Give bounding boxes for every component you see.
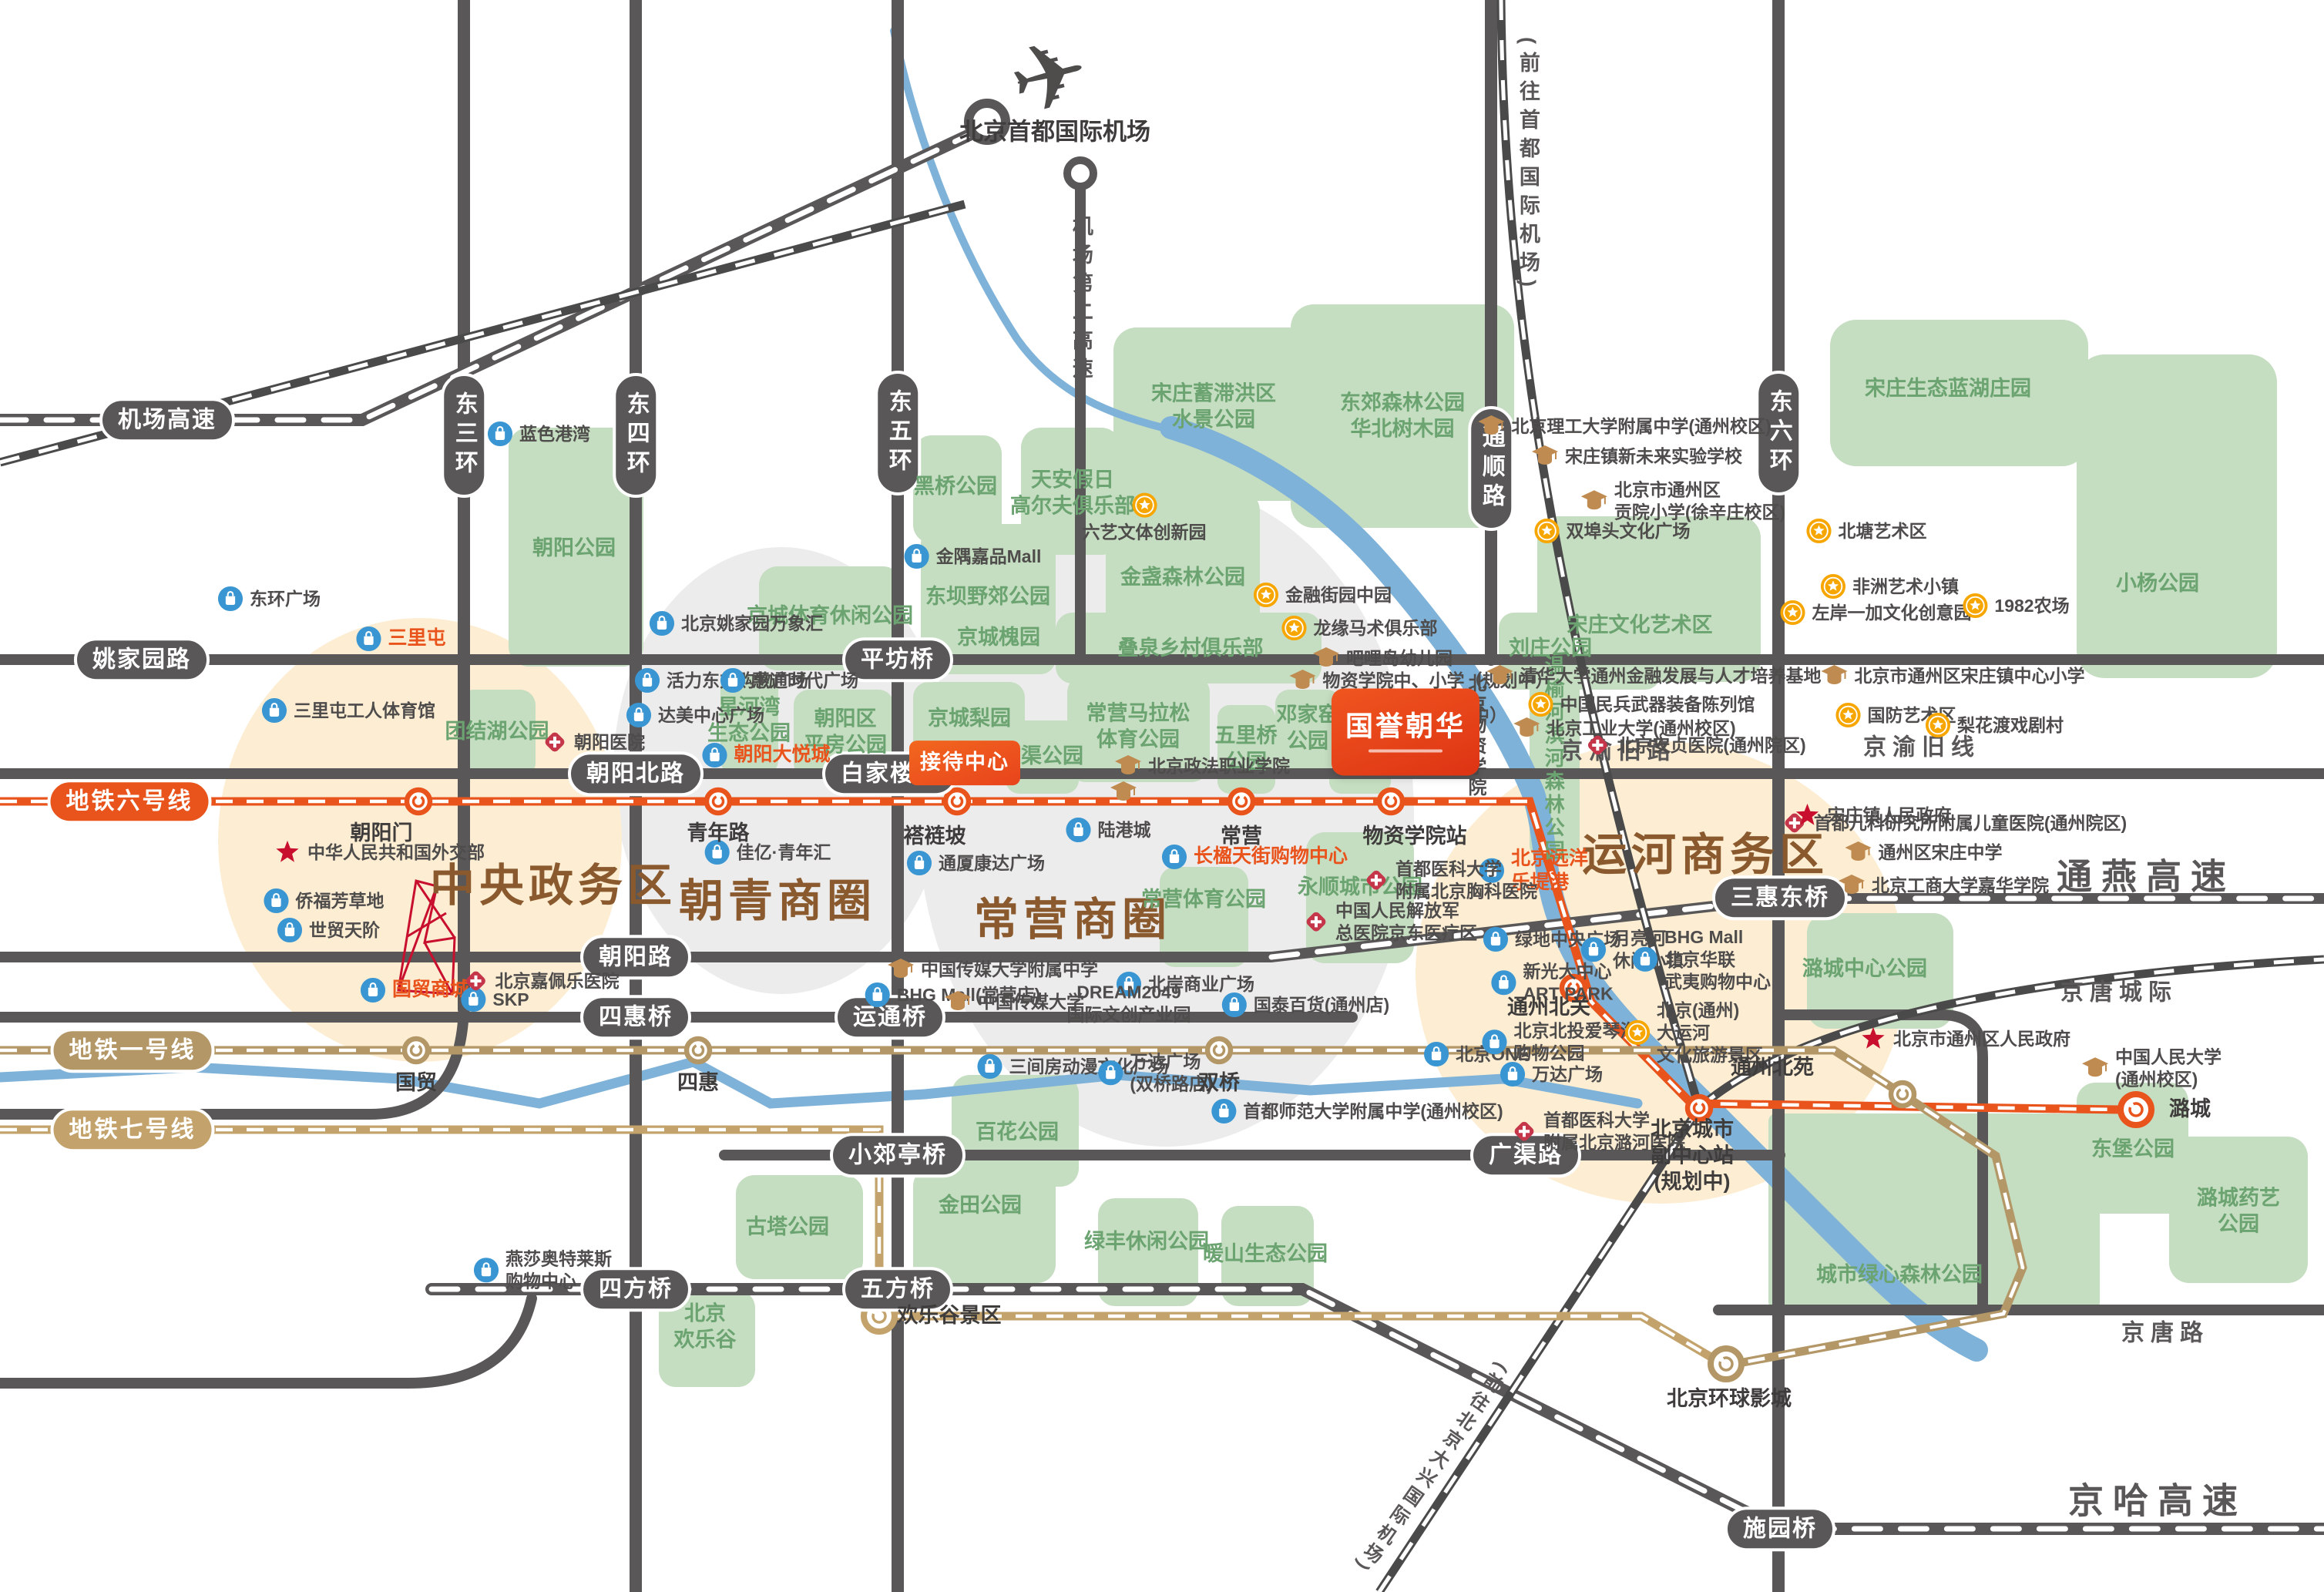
district-title: 朝青商圈	[679, 874, 876, 930]
school-poi-text: 通州区宋庄中学	[1879, 841, 2003, 864]
school-poi	[1110, 780, 1144, 804]
shopping-bag-icon	[261, 697, 287, 724]
park-label: 叠泉乡村俱乐部	[1118, 636, 1264, 662]
hospital-poi: 北京安贞医院(通州院区)	[1584, 732, 1805, 758]
road-badge: 姚家园路	[74, 637, 210, 682]
graduation-cap-icon	[1110, 780, 1137, 804]
metro-station-label: 潞城	[2169, 1097, 2211, 1123]
park-label-text: 宋庄生态蓝湖庄园	[1865, 376, 2031, 402]
graduation-cap-icon	[1821, 663, 1849, 688]
shopping-bag-icon	[649, 610, 675, 636]
attraction-poi: 北塘艺术区	[1806, 518, 1927, 544]
attraction-poi-text: 北塘艺术区	[1839, 520, 1927, 542]
shopping-bag-icon	[217, 586, 243, 612]
school-poi: 中国人民大学 (通州校区)	[2081, 1046, 2222, 1090]
government-poi: 宋庄镇人民政府	[1794, 802, 1952, 828]
school-poi-text: 中国人民大学 (通州校区)	[2115, 1046, 2222, 1090]
mall-poi-highlight: 朝阳大悦城	[701, 742, 830, 768]
label-layer: 北京首都国际机场✈机场第二高速(前往首都国际机场)(前往北京大兴国际机场)机场高…	[0, 0, 2324, 1592]
park-label: 朝阳公园	[532, 536, 616, 562]
school-poi-text: 北京理工大学附属中学(通州校区)	[1511, 415, 1771, 438]
shopping-bag-icon	[1632, 946, 1658, 972]
school-poi: 北京政法职业学院	[1114, 754, 1290, 778]
star-attraction-icon	[1835, 702, 1862, 728]
park-label: 宋庄文化艺术区	[1567, 613, 1713, 639]
park-label-text: 京城槐园	[957, 625, 1040, 651]
school-poi-text: 中国传媒大学	[978, 991, 1084, 1013]
shopping-bag-icon	[626, 702, 652, 728]
attraction-poi: 非洲艺术小镇	[1820, 573, 1959, 600]
star-attraction-icon	[1806, 518, 1832, 544]
attraction-poi: 六艺文体创新园	[1083, 492, 1207, 544]
shopping-bag-icon	[264, 888, 290, 914]
hospital-poi: 朝阳医院	[542, 729, 645, 755]
metro-station-label: 常营	[1221, 824, 1262, 850]
park-label-text: 东堡公园	[2091, 1137, 2175, 1163]
hospital-cross-icon	[1584, 732, 1610, 758]
shopping-bag-icon	[634, 667, 660, 694]
park-label: 东郊森林公园 华北树木园	[1340, 390, 1465, 442]
park-label: 常营体育公园	[1141, 887, 1266, 913]
shopping-bag-icon	[906, 850, 932, 876]
mall-poi-highlight: 国贸商城	[360, 977, 469, 1003]
graduation-cap-icon	[1513, 716, 1540, 741]
school-poi: 北京市通州区宋庄镇中心小学	[1821, 663, 2085, 688]
ring-road-badge: 东四环	[613, 373, 659, 498]
shopping-bag-icon	[865, 982, 891, 1008]
mall-poi: 北京北投爱琴海 购物公园	[1482, 1019, 1638, 1064]
road-label-vertical-text: 机场第二高速	[1067, 215, 1093, 386]
hospital-poi-text: 中国人民解放军 总医院京东医疗区	[1335, 899, 1477, 944]
ring-road-badge-text: 东三环	[449, 391, 479, 479]
mall-poi-text: 国泰百货(通州店)	[1254, 994, 1389, 1016]
park-label: 暖山生态公园	[1203, 1241, 1328, 1268]
graduation-cap-icon	[1312, 646, 1340, 670]
graduation-cap-icon	[1531, 444, 1559, 469]
metro-station-label-text: 欢乐谷景区	[898, 1303, 1002, 1329]
park-label: 金盏森林公园	[1120, 565, 1245, 591]
text-label-text: DREAM2049 国际文创产业园	[1067, 981, 1191, 1026]
attraction-poi-text: 金融街园中园	[1285, 584, 1392, 606]
park-label-text: 叠泉乡村俱乐部	[1118, 636, 1264, 662]
metro-station-label-text: 国贸	[395, 1070, 437, 1097]
road-badge: 小郊亭桥	[830, 1133, 966, 1177]
park-label: 古塔公园	[746, 1214, 829, 1241]
school-poi-text: 清华大学通州金融发展与人才培养基地	[1520, 665, 1822, 687]
park-label: 常营马拉松 体育公园	[1086, 700, 1191, 753]
expressway-label: 京哈高速	[2068, 1479, 2247, 1523]
park-label: 京城梨园	[928, 706, 1011, 732]
road-badge-text: 小郊亭桥	[848, 1140, 947, 1170]
shopping-bag-icon	[1066, 817, 1092, 843]
park-label: 邓家窑 公园	[1277, 702, 1339, 754]
graduation-cap-icon	[1580, 489, 1608, 513]
metro-station-label: 通州北苑	[1731, 1055, 1814, 1081]
park-label-text: 城市绿心森林公园	[1816, 1262, 1983, 1288]
project-marker-subline	[1369, 750, 1442, 753]
park-label: 北京 欢乐谷	[674, 1301, 737, 1353]
district-title-text: 朝青商圈	[679, 874, 876, 930]
mall-poi-text: 金隅嘉品Mall	[936, 546, 1042, 568]
star-attraction-icon	[1534, 518, 1560, 544]
hospital-cross-icon	[1303, 909, 1329, 935]
project-marker-text: 国誉朝华	[1345, 709, 1466, 744]
road-label: 京唐路	[2121, 1318, 2209, 1348]
mall-poi-text: 蓝色港湾	[519, 423, 590, 445]
mall-poi: 万达广场 (双桥路店)	[1097, 1050, 1212, 1095]
school-poi: 中国传媒大学	[944, 989, 1084, 1014]
park-label-text: 百花公园	[976, 1120, 1059, 1146]
park-label: 城市绿心森林公园	[1816, 1262, 1983, 1288]
park-label: 潞城中心公园	[1802, 956, 1927, 982]
hospital-poi: 北京嘉佩乐医院	[463, 968, 620, 994]
park-label: 潞城药艺公园	[2196, 1185, 2282, 1238]
park-label-text: 潞城中心公园	[1802, 956, 1927, 982]
attraction-poi: 金融街园中园	[1253, 582, 1392, 608]
expressway-label-text: 通燕高速	[2057, 855, 2235, 899]
ring-road-badge-text: 东四环	[621, 391, 650, 479]
star-attraction-icon	[1624, 1019, 1651, 1046]
metro-line6-badge: 地铁六号线	[48, 779, 212, 824]
mall-poi-text: 万达广场	[1532, 1063, 1603, 1086]
mall-poi: 三里屯工人体育馆	[261, 697, 435, 724]
school-poi-text: 吧哩岛幼儿园	[1346, 647, 1452, 670]
mall-poi-text: 陆港城	[1098, 819, 1151, 841]
star-attraction-icon	[1820, 573, 1846, 600]
mall-poi-highlight-text: 三里屯	[388, 626, 445, 650]
graduation-cap-icon	[1114, 754, 1142, 778]
hospital-poi-text: 首都医科大学 附属北京胸科医院	[1395, 858, 1537, 902]
attraction-poi-text: 中国民兵武器装备陈列馆	[1560, 694, 1755, 716]
metro-line7-badge-text: 地铁七号线	[69, 1115, 196, 1144]
attraction-poi: 1982农场	[1962, 593, 2069, 619]
mall-poi: BHG Mall 北京华联 武夷购物中心	[1632, 926, 1771, 992]
metro-station-label: 双桥	[1198, 1070, 1240, 1097]
reception-marker-text: 接待中心	[920, 750, 1009, 776]
graduation-cap-icon	[1838, 873, 1866, 898]
hospital-cross-icon	[1363, 867, 1389, 893]
park-label-text: 朝阳公园	[532, 536, 616, 562]
mall-poi-text: 侨福芳草地	[296, 890, 385, 912]
location-map: 北京首都国际机场✈机场第二高速(前往首都国际机场)(前往北京大兴国际机场)机场高…	[0, 0, 2324, 1592]
park-label: 京城槐园	[957, 625, 1040, 651]
road-badge-text: 朝阳北路	[586, 759, 685, 788]
metro-station-label-text: 物资学院站	[1363, 824, 1467, 850]
government-poi: 北京市通州区人民政府	[1859, 1026, 2070, 1052]
road-badge-text: 三惠东桥	[1731, 883, 1829, 912]
metro-station-label-text: 朝阳门	[351, 821, 413, 847]
shopping-bag-icon	[360, 977, 386, 1003]
park-label-text: 黑桥公园	[914, 474, 997, 500]
graduation-cap-icon	[1486, 663, 1514, 688]
hospital-poi: 首都医科大学 附属北京胸科医院	[1363, 858, 1537, 902]
hospital-cross-icon	[463, 968, 489, 994]
park-label: 宋庄蓄滞洪区 水景公园	[1151, 381, 1276, 433]
metro-line6-badge-text: 地铁六号线	[66, 787, 193, 816]
park-label-text: 邓家窑 公园	[1277, 702, 1339, 754]
school-poi-text: 北京市通州区宋庄镇中心小学	[1855, 665, 2085, 687]
mall-poi-text: 世贸天阶	[309, 919, 380, 942]
graduation-cap-icon	[944, 989, 972, 1014]
hospital-cross-icon	[1511, 1118, 1537, 1144]
metro-station-label: 朝阳门	[351, 821, 413, 847]
expressway-label: 通燕高速	[2057, 855, 2235, 899]
school-poi: 北京市通州区 贡院小学(徐辛庄校区)	[1580, 479, 1785, 523]
mall-poi: 世贸天阶	[277, 917, 380, 943]
attraction-poi-text: 非洲艺术小镇	[1852, 576, 1959, 598]
attraction-poi-text: 梨花渡戏剧村	[1957, 714, 2064, 737]
park-label: 东坝野郊公园	[925, 584, 1050, 610]
park-label-text: 暖山生态公园	[1203, 1241, 1328, 1268]
hospital-poi: 中国人民解放军 总医院京东医疗区	[1303, 899, 1477, 944]
park-label: 小杨公园	[2116, 571, 2199, 597]
mall-poi: 金隅嘉品Mall	[904, 543, 1042, 569]
metro-line1-badge: 地铁一号线	[51, 1028, 215, 1073]
graduation-cap-icon	[887, 957, 915, 982]
shopping-bag-icon	[1211, 1098, 1237, 1124]
metro-station-label: 国贸	[395, 1070, 437, 1097]
mall-poi-text: 惠通时代广场	[752, 670, 858, 692]
metro-station-label-text: 常营	[1221, 824, 1262, 850]
mall-poi: 万达广场	[1500, 1061, 1603, 1087]
mall-poi-highlight: 三里屯	[355, 626, 445, 652]
park-label: 团结湖公园	[445, 719, 549, 745]
metro-line7-badge: 地铁七号线	[51, 1107, 215, 1152]
shopping-bag-icon	[277, 917, 303, 943]
mall-poi: 东环广场	[217, 586, 321, 612]
metro-station-label-text: 青年路	[687, 821, 750, 847]
park-label-text: 小杨公园	[2116, 571, 2199, 597]
mall-poi: 燕莎奥特莱斯 购物中心	[473, 1248, 612, 1292]
government-star-icon	[1794, 802, 1822, 828]
shopping-bag-icon	[977, 1053, 1003, 1080]
road-badge: 平坊桥	[842, 637, 953, 682]
ring-road-badge: 东三环	[441, 373, 487, 498]
park-label-text: 宋庄文化艺术区	[1567, 613, 1713, 639]
attraction-poi-text: 左岸一加文化创意园	[1812, 602, 1972, 624]
metro-station-label: 褡裢坡	[904, 824, 966, 850]
park-label-text: 京城梨园	[928, 706, 1011, 732]
metro-station-label-text: 双桥	[1198, 1070, 1240, 1097]
road-badge-text: 平坊桥	[861, 645, 935, 674]
mall-poi-highlight-text: 长楹天街购物中心	[1194, 845, 1348, 868]
shopping-bag-icon	[1161, 844, 1187, 870]
metro-station-label: 北京环球影城	[1667, 1386, 1792, 1412]
road-badge: 四惠桥	[580, 995, 691, 1040]
shopping-bag-icon	[1482, 1029, 1508, 1055]
metro-station-label: 青年路	[687, 821, 750, 847]
mall-poi: 达美中心广场	[626, 702, 764, 728]
school-poi: 通州区宋庄中学	[1845, 840, 2003, 865]
park-label-text: 绿丰休闲公园	[1084, 1229, 1209, 1255]
attraction-poi: 中国民兵武器装备陈列馆	[1528, 691, 1755, 717]
school-poi-text: 中国传媒大学附属中学	[921, 959, 1098, 981]
mall-poi-text: 首都师范大学附属中学(通州校区)	[1243, 1100, 1503, 1123]
park-label-text: 东坝野郊公园	[925, 584, 1050, 610]
expressway-label-text: 京哈高速	[2068, 1479, 2247, 1523]
metro-station-label-text: 通州北关	[1507, 995, 1590, 1021]
road-label-text: 京唐路	[2121, 1318, 2209, 1348]
metro-station-label-text: 北京城市 副中心站 (规划中)	[1651, 1117, 1734, 1194]
school-poi: 中国传媒大学附属中学	[887, 957, 1098, 982]
metro-station-label-text: 四惠	[677, 1070, 719, 1097]
star-attraction-icon	[1253, 582, 1279, 608]
road-badge-text: 五方桥	[861, 1275, 935, 1304]
park-label-text: 团结湖公园	[445, 719, 549, 745]
shopping-bag-icon	[1580, 936, 1607, 962]
school-poi: 北京理工大学附属中学(通州校区)	[1477, 414, 1771, 438]
mall-poi: 惠通时代广场	[720, 667, 858, 694]
government-poi-text: 北京市通州区人民政府	[1893, 1028, 2070, 1050]
road-badge-text: 施园桥	[1743, 1514, 1817, 1543]
road-badge: 施园桥	[1725, 1506, 1835, 1551]
graduation-cap-icon	[1477, 414, 1505, 438]
road-badge: 朝阳北路	[568, 751, 704, 796]
government-poi-text: 宋庄镇人民政府	[1828, 804, 1952, 827]
school-poi: 北京工商大学嘉华学院	[1838, 873, 2049, 898]
school-poi: 清华大学通州金融发展与人才培养基地	[1486, 663, 1822, 688]
park-label-text: 宋庄蓄滞洪区 水景公园	[1151, 381, 1276, 433]
metro-station-label: 四惠	[677, 1070, 719, 1097]
road-label-text: 京唐城际	[2060, 978, 2178, 1007]
reception-marker: 接待中心	[909, 741, 1020, 785]
park-label: 金田公园	[939, 1193, 1022, 1219]
school-poi-text: 北京工商大学嘉华学院	[1872, 875, 2049, 897]
road-label-vertical-text: (前往首都国际机场)	[1514, 37, 1540, 294]
mall-poi-text: BHG Mall 北京华联 武夷购物中心	[1664, 926, 1771, 992]
shopping-bag-icon	[904, 543, 930, 569]
road-label: 京唐城际	[2060, 978, 2178, 1007]
shopping-bag-icon	[701, 742, 727, 768]
shopping-bag-icon	[1490, 969, 1516, 996]
mall-poi-text: 佳亿·青年汇	[737, 841, 831, 864]
attraction-poi-text: 双埠头文化广场	[1567, 520, 1691, 542]
attraction-poi-text: 龙缘马术俱乐部	[1314, 617, 1438, 640]
hospital-poi-text: 北京安贞医院(通州院区)	[1617, 734, 1805, 757]
school-poi: 吧哩岛幼儿园	[1312, 646, 1452, 670]
government-star-icon	[274, 839, 301, 865]
mall-poi-text: 北京北投爱琴海 购物公园	[1514, 1019, 1638, 1064]
rail-direction-label: (前往北京大兴国际机场)	[1348, 1358, 1513, 1578]
shopping-bag-icon	[720, 667, 746, 694]
project-marker: 国誉朝华	[1332, 689, 1479, 776]
park-label: 绿丰休闲公园	[1084, 1229, 1209, 1255]
park-label-text: 东郊森林公园 华北树木园	[1340, 390, 1465, 442]
park-label-text: 金盏森林公园	[1120, 565, 1245, 591]
road-badge-text: 四惠桥	[599, 1003, 673, 1032]
school-poi-text: 宋庄镇新未来实验学校	[1565, 445, 1742, 468]
metro-station-label: 欢乐谷景区	[898, 1303, 1002, 1329]
hospital-cross-icon	[542, 729, 568, 755]
mall-poi: 国泰百货(通州店)	[1221, 992, 1389, 1018]
park-label-text: 北京 欢乐谷	[674, 1301, 737, 1353]
shopping-bag-icon	[1097, 1060, 1123, 1086]
park-label-text: 古塔公园	[746, 1214, 829, 1241]
graduation-cap-icon	[2081, 1056, 2109, 1080]
hospital-poi-text: 北京嘉佩乐医院	[495, 970, 620, 992]
park-label-text: 金田公园	[939, 1193, 1022, 1219]
mall-poi-text: 北京姚家园万象汇	[681, 613, 823, 635]
metro-station-label: 物资学院站	[1363, 824, 1467, 850]
park-label-text: 常营体育公园	[1141, 887, 1266, 913]
metro-station-label-text: 北京环球影城	[1667, 1386, 1792, 1412]
shopping-bag-icon	[355, 626, 381, 652]
shopping-bag-icon	[487, 421, 513, 447]
shopping-bag-icon	[1221, 992, 1248, 1018]
shopping-bag-icon	[1423, 1041, 1449, 1067]
graduation-cap-icon	[1845, 840, 1872, 865]
road-label-vertical: 机场第二高速	[1067, 215, 1093, 386]
star-attraction-icon	[1962, 593, 1988, 619]
mall-poi: 通厦康达广场	[906, 850, 1045, 876]
attraction-poi: 梨花渡戏剧村	[1925, 712, 2064, 738]
attraction-poi: 龙缘马术俱乐部	[1281, 615, 1438, 641]
district-title: 中央政务区	[430, 858, 677, 915]
graduation-cap-icon	[1289, 668, 1317, 693]
mall-poi-text: 达美中心广场	[658, 704, 764, 727]
star-attraction-icon	[1925, 712, 1951, 738]
mall-poi-text: 通厦康达广场	[939, 852, 1045, 875]
road-badge-text: 姚家园路	[92, 645, 191, 674]
metro-station-label-text: 褡裢坡	[904, 824, 966, 850]
mall-poi-text: 东环广场	[250, 588, 321, 610]
hospital-poi-text: 朝阳医院	[574, 731, 645, 754]
mall-poi: 首都师范大学附属中学(通州校区)	[1211, 1098, 1503, 1124]
park-label: 东堡公园	[2091, 1137, 2175, 1163]
mall-poi: 蓝色港湾	[487, 421, 590, 447]
attraction-poi: 左岸一加文化创意园	[1780, 600, 1972, 626]
government-star-icon	[1859, 1026, 1887, 1052]
shopping-bag-icon	[1483, 926, 1509, 952]
road-badge: 机场高速	[99, 398, 235, 442]
school-poi: 宋庄镇新未来实验学校	[1531, 444, 1742, 469]
shopping-bag-icon	[1500, 1061, 1526, 1087]
shopping-bag-icon	[473, 1257, 499, 1283]
star-attraction-icon	[1528, 691, 1554, 717]
text-label: DREAM2049 国际文创产业园	[1067, 981, 1191, 1026]
district-title-text: 中央政务区	[430, 858, 677, 915]
park-label: 黑桥公园	[914, 474, 997, 500]
mall-poi: 侨福芳草地	[264, 888, 385, 914]
road-badge-text: 机场高速	[118, 405, 217, 435]
mall-poi: 北京姚家园万象汇	[649, 610, 823, 636]
park-label: 百花公园	[976, 1120, 1059, 1146]
mall-poi: 陆港城	[1066, 817, 1151, 843]
mall-poi-text: 三里屯工人体育馆	[294, 700, 435, 722]
school-poi-text: 北京政法职业学院	[1148, 755, 1290, 778]
park-label: 宋庄生态蓝湖庄园	[1865, 376, 2031, 402]
school-poi-text: 北京市通州区 贡院小学(徐辛庄校区)	[1614, 479, 1785, 523]
metro-station-label: 北京城市 副中心站 (规划中)	[1651, 1117, 1734, 1194]
park-label-text: 潞城药艺公园	[2196, 1185, 2282, 1238]
mall-poi-text: 燕莎奥特莱斯 购物中心	[505, 1248, 612, 1292]
star-attraction-icon	[1131, 492, 1157, 519]
mall-poi-highlight-text: 国贸商城	[392, 978, 469, 1002]
rail-direction-label-text: (前往北京大兴国际机场)	[1348, 1358, 1513, 1578]
star-attraction-icon	[1780, 600, 1806, 626]
attraction-poi-text: 六艺文体创新园	[1083, 522, 1207, 544]
star-attraction-icon	[1281, 615, 1308, 641]
metro-station-label-text: 通州北苑	[1731, 1055, 1814, 1081]
road-label-vertical: (前往首都国际机场)	[1514, 37, 1540, 294]
park-label-text: 常营马拉松 体育公园	[1086, 700, 1191, 753]
metro-line1-badge-text: 地铁一号线	[69, 1036, 196, 1065]
ring-road-badge-text: 东五环	[883, 389, 912, 477]
metro-station-label: 通州北关	[1507, 995, 1590, 1021]
attraction-poi-text: 1982农场	[1994, 595, 2069, 617]
metro-station-label-text: 潞城	[2169, 1097, 2211, 1123]
mall-poi-highlight-text: 朝阳大悦城	[734, 743, 830, 767]
